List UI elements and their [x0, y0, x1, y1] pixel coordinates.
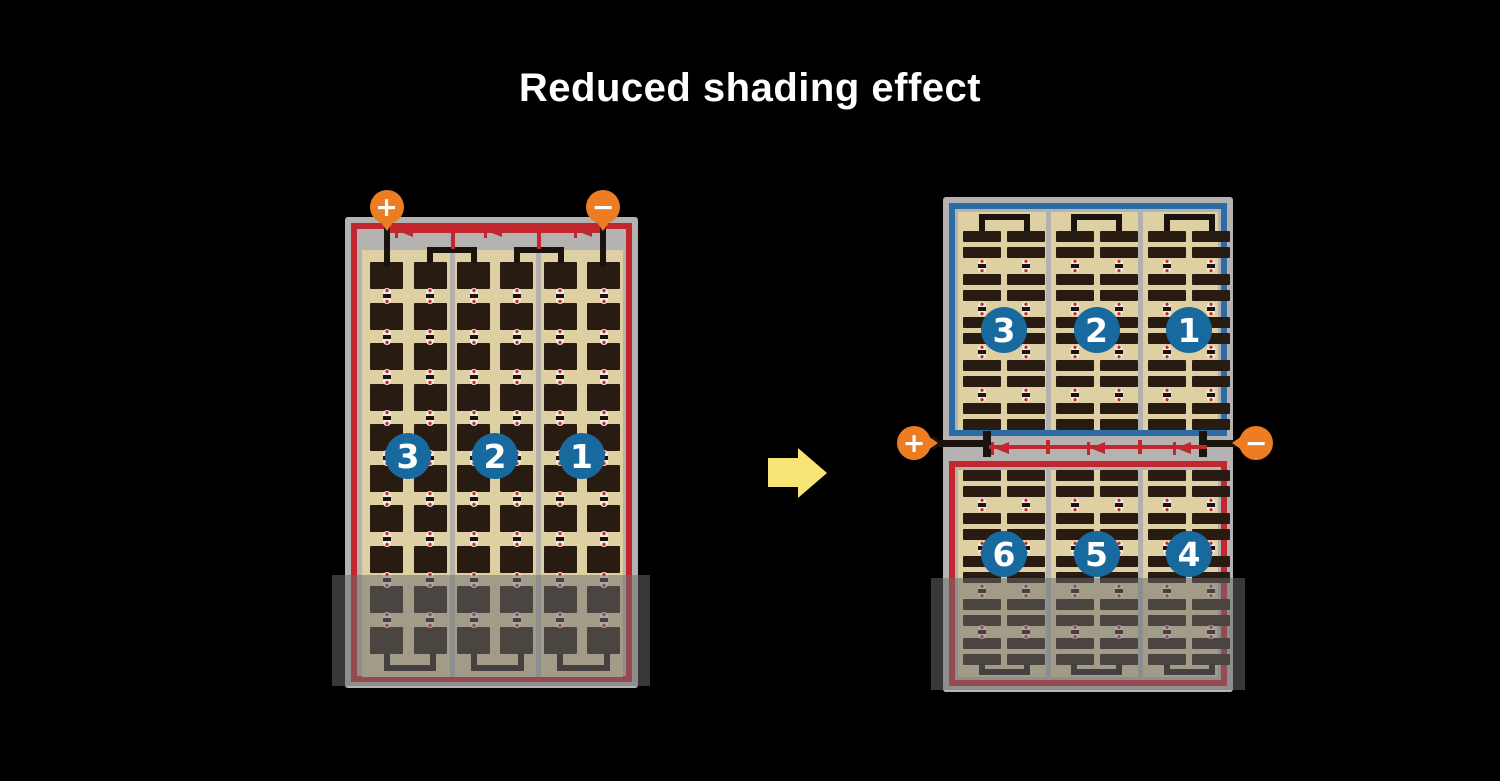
solar-cell	[963, 403, 1001, 414]
cell-connector	[600, 410, 608, 426]
cell-connector	[513, 491, 521, 507]
series-arc-top	[427, 247, 477, 263]
cell-connector	[426, 288, 434, 304]
solar-cell	[1148, 231, 1186, 242]
solar-cell	[1148, 419, 1186, 430]
series-arc-top	[979, 214, 1030, 231]
cell-connector	[383, 491, 391, 507]
cell-connector	[513, 410, 521, 426]
solar-cell	[1007, 376, 1045, 387]
right-upper-cell-area: 321	[958, 212, 1218, 430]
solar-cell	[457, 384, 490, 411]
solar-cell	[963, 360, 1001, 371]
solar-cell	[1056, 486, 1094, 497]
cell-connector	[426, 329, 434, 345]
solar-cell	[1056, 231, 1094, 242]
solar-cell	[1192, 419, 1230, 430]
cell-connector	[470, 491, 478, 507]
string-number-badge: 3	[385, 433, 431, 479]
cell-connector	[383, 369, 391, 385]
string-number-badge: 1	[1166, 307, 1212, 353]
cell-connector	[978, 498, 986, 512]
solar-cell	[457, 505, 490, 532]
solar-cell	[1100, 247, 1138, 258]
cell-connector	[1071, 259, 1079, 273]
cell-connector	[1022, 302, 1030, 316]
solar-cell	[370, 546, 403, 573]
solar-cell	[1056, 403, 1094, 414]
cell-connector	[1207, 259, 1215, 273]
solar-cell	[1007, 486, 1045, 497]
diode-left-icon	[991, 442, 1010, 455]
junction-bar	[1199, 431, 1207, 457]
cell-connector	[383, 410, 391, 426]
solar-cell	[1007, 513, 1045, 524]
terminal-pointer	[928, 436, 938, 450]
string-number-badge: 2	[1074, 307, 1120, 353]
solar-cell	[1007, 360, 1045, 371]
solar-cell	[370, 384, 403, 411]
solar-cell	[1056, 360, 1094, 371]
solar-cell	[1007, 419, 1045, 430]
solar-cell	[1148, 486, 1186, 497]
cell-connector	[600, 491, 608, 507]
cell-connector	[1071, 345, 1079, 359]
solar-cell	[587, 505, 620, 532]
string-number-badge: 3	[981, 307, 1027, 353]
solar-cell	[544, 384, 577, 411]
solar-cell	[1100, 231, 1138, 242]
cell-connector	[513, 288, 521, 304]
cell-connector	[426, 369, 434, 385]
cell-connector	[426, 531, 434, 547]
plus-sign: +	[375, 192, 398, 223]
solar-cell	[1056, 247, 1094, 258]
cell-connector	[600, 369, 608, 385]
diode-triangle	[577, 225, 592, 237]
string-number-badge: 2	[472, 433, 518, 479]
solar-cell	[1192, 513, 1230, 524]
cell-connector	[470, 531, 478, 547]
cell-connector	[383, 329, 391, 345]
cell-connector	[470, 288, 478, 304]
cell-connector	[470, 329, 478, 345]
string-divider	[1138, 212, 1143, 430]
right-upper-module: 321	[943, 197, 1233, 442]
cell-connector	[1163, 302, 1171, 316]
string-number-badge: 6	[981, 531, 1027, 577]
cell-connector	[1163, 345, 1171, 359]
cell-connector	[556, 410, 564, 426]
diode-tap	[1046, 440, 1050, 454]
solar-cell	[370, 505, 403, 532]
solar-cell	[414, 303, 447, 330]
diode-triangle	[398, 225, 413, 237]
cell-connector	[1163, 388, 1171, 402]
solar-cell	[1007, 247, 1045, 258]
cell-connector	[978, 302, 986, 316]
shading-overlay-right	[931, 578, 1245, 690]
solar-cell	[1056, 274, 1094, 285]
solar-cell	[963, 513, 1001, 524]
solar-cell	[1148, 376, 1186, 387]
solar-cell	[1056, 376, 1094, 387]
solar-cell	[963, 419, 1001, 430]
solar-cell	[457, 343, 490, 370]
solar-cell	[500, 384, 533, 411]
cell-connector	[600, 329, 608, 345]
solar-cell	[1100, 403, 1138, 414]
series-arc-top	[514, 247, 564, 263]
cell-connector	[1207, 345, 1215, 359]
solar-cell	[1148, 274, 1186, 285]
string-number-badge: 5	[1074, 531, 1120, 577]
cell-connector	[1071, 498, 1079, 512]
terminal-pointer	[596, 221, 610, 231]
cell-connector	[513, 329, 521, 345]
solar-cell	[1192, 486, 1230, 497]
cell-connector	[1207, 498, 1215, 512]
solar-cell	[1056, 513, 1094, 524]
cell-connector	[470, 369, 478, 385]
solar-cell	[544, 546, 577, 573]
solar-cell	[457, 303, 490, 330]
solar-cell	[457, 262, 490, 289]
solar-cell	[1100, 274, 1138, 285]
solar-cell	[963, 376, 1001, 387]
cell-connector	[1115, 388, 1123, 402]
diode-left-icon	[395, 225, 414, 238]
cell-connector	[1115, 345, 1123, 359]
solar-cell	[1100, 290, 1138, 301]
solar-cell	[1192, 470, 1230, 481]
solar-cell	[500, 546, 533, 573]
diode-triangle	[1176, 442, 1191, 454]
series-arc-top	[1164, 214, 1215, 231]
solar-cell	[414, 384, 447, 411]
solar-cell	[1100, 376, 1138, 387]
solar-cell	[587, 343, 620, 370]
cell-connector	[556, 329, 564, 345]
diode-tap	[1138, 440, 1142, 454]
cell-connector	[1022, 498, 1030, 512]
string-number-badge: 4	[1166, 531, 1212, 577]
solar-cell	[370, 343, 403, 370]
cell-connector	[470, 410, 478, 426]
solar-cell	[1192, 274, 1230, 285]
solar-cell	[1192, 247, 1230, 258]
solar-cell	[963, 274, 1001, 285]
cell-connector	[978, 345, 986, 359]
solar-cell	[1100, 360, 1138, 371]
plus-sign: +	[903, 428, 926, 459]
solar-cell	[544, 343, 577, 370]
diode-tap	[537, 231, 541, 249]
solar-cell	[500, 505, 533, 532]
solar-cell	[1148, 247, 1186, 258]
diode-left-icon	[1087, 442, 1106, 455]
solar-cell	[587, 384, 620, 411]
solar-cell	[1148, 290, 1186, 301]
cell-connector	[513, 369, 521, 385]
solar-cell	[544, 505, 577, 532]
cell-connector	[1115, 302, 1123, 316]
solar-cell	[963, 470, 1001, 481]
solar-cell	[1148, 403, 1186, 414]
cell-connector	[426, 410, 434, 426]
shading-overlay-left	[332, 575, 650, 686]
diode-tap	[451, 231, 455, 249]
cell-connector	[1071, 388, 1079, 402]
cell-connector	[556, 531, 564, 547]
solar-cell	[963, 290, 1001, 301]
solar-cell	[1056, 419, 1094, 430]
solar-cell	[1007, 231, 1045, 242]
cell-connector	[1163, 498, 1171, 512]
solar-cell	[1007, 274, 1045, 285]
solar-cell	[370, 303, 403, 330]
series-arc-top	[1071, 214, 1122, 231]
cell-connector	[1115, 498, 1123, 512]
diode-left-icon	[574, 225, 593, 238]
cell-connector	[1207, 388, 1215, 402]
solar-cell	[457, 546, 490, 573]
solar-cell	[500, 303, 533, 330]
cell-connector	[978, 388, 986, 402]
arrow-body	[768, 458, 798, 487]
diode-triangle	[487, 225, 502, 237]
solar-cell	[544, 303, 577, 330]
cell-connector	[556, 491, 564, 507]
solar-cell	[963, 231, 1001, 242]
minus-circle-icon: −	[586, 190, 620, 224]
cell-connector	[1163, 259, 1171, 273]
cell-connector	[1022, 259, 1030, 273]
cell-connector	[600, 288, 608, 304]
diode-triangle	[1090, 442, 1105, 454]
diode-left-icon	[1173, 442, 1192, 455]
cell-connector	[383, 288, 391, 304]
solar-cell	[1100, 513, 1138, 524]
cell-connector	[600, 531, 608, 547]
solar-cell	[1192, 231, 1230, 242]
arrow-right-icon	[768, 448, 828, 498]
solar-cell	[1056, 290, 1094, 301]
cell-connector	[1207, 302, 1215, 316]
cell-connector	[556, 369, 564, 385]
solar-cell	[1192, 376, 1230, 387]
solar-cell	[1192, 290, 1230, 301]
solar-cell	[414, 546, 447, 573]
string-number-badge: 1	[559, 433, 605, 479]
cell-connector	[426, 491, 434, 507]
diode-triangle	[994, 442, 1009, 454]
solar-cell	[963, 486, 1001, 497]
cell-connector	[1022, 345, 1030, 359]
solar-cell	[1100, 486, 1138, 497]
minus-circle-icon: −	[1239, 426, 1273, 460]
solar-cell	[414, 262, 447, 289]
cell-connector	[1115, 259, 1123, 273]
arrow-head	[798, 448, 827, 498]
terminal-pointer	[380, 221, 394, 231]
solar-cell	[1007, 290, 1045, 301]
diagram-title: Reduced shading effect	[0, 66, 1500, 111]
solar-cell	[1007, 403, 1045, 414]
solar-cell	[587, 546, 620, 573]
solar-cell	[1148, 470, 1186, 481]
solar-cell	[1100, 419, 1138, 430]
solar-cell	[414, 343, 447, 370]
terminal-pointer	[1232, 436, 1242, 450]
diode-left-icon	[484, 225, 503, 238]
cell-connector	[383, 531, 391, 547]
solar-cell	[1192, 403, 1230, 414]
solar-cell	[1148, 513, 1186, 524]
cell-connector	[556, 288, 564, 304]
plus-circle-icon: +	[897, 426, 931, 460]
solar-cell	[1007, 470, 1045, 481]
solar-cell	[1192, 360, 1230, 371]
cell-connector	[978, 259, 986, 273]
diagram-canvas: Reduced shading effect 321 321 654 + − +…	[0, 0, 1500, 781]
solar-cell	[544, 262, 577, 289]
solar-cell	[500, 262, 533, 289]
plus-circle-icon: +	[370, 190, 404, 224]
cell-connector	[1071, 302, 1079, 316]
solar-cell	[963, 247, 1001, 258]
solar-cell	[1056, 470, 1094, 481]
solar-cell	[1100, 470, 1138, 481]
string-divider	[1046, 212, 1051, 430]
solar-cell	[500, 343, 533, 370]
solar-cell	[1148, 360, 1186, 371]
minus-sign: −	[1245, 428, 1268, 459]
cell-connector	[1022, 388, 1030, 402]
minus-sign: −	[592, 192, 615, 223]
solar-cell	[587, 303, 620, 330]
solar-cell	[414, 505, 447, 532]
cell-connector	[513, 531, 521, 547]
